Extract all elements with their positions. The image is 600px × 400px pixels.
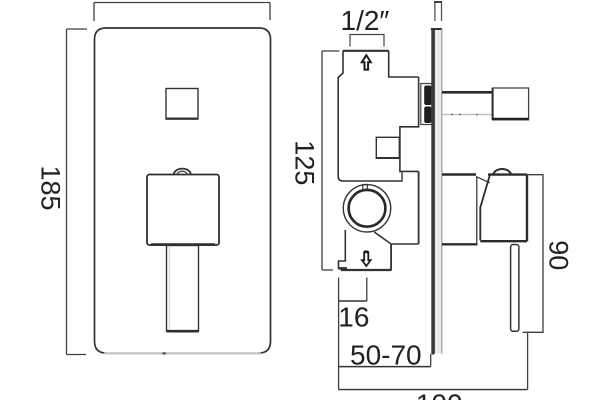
svg-text:100: 100 [416,389,463,400]
svg-text:16: 16 [338,302,369,333]
svg-text:1/2″: 1/2″ [341,5,390,36]
svg-text:90: 90 [543,240,573,270]
svg-text:125: 125 [290,140,320,185]
svg-text:185: 185 [36,166,66,211]
